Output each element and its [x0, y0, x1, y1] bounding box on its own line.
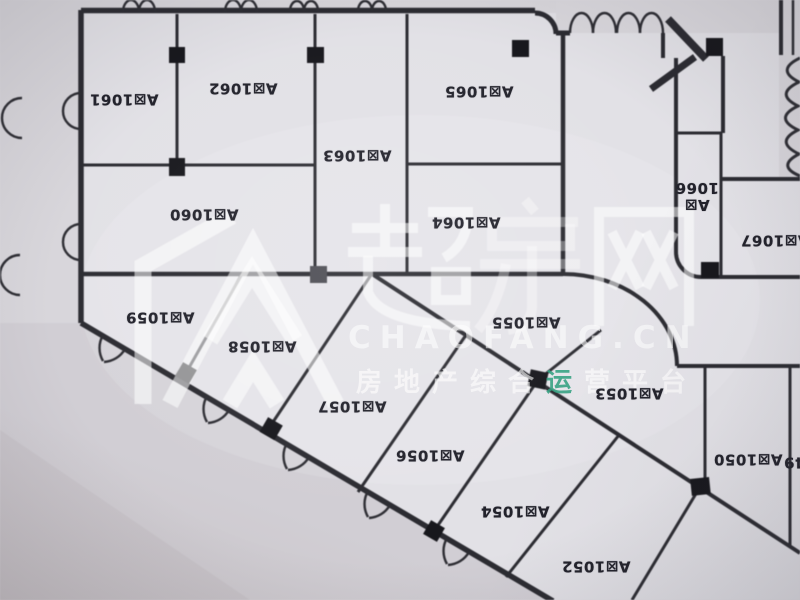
floorplan-screenshot: 超房网 CHAOFANG.CN 房地产综合运营平台 A⊠1061A⊠1062A⊠…: [0, 0, 800, 600]
floor-plan-drawing: [0, 0, 800, 600]
